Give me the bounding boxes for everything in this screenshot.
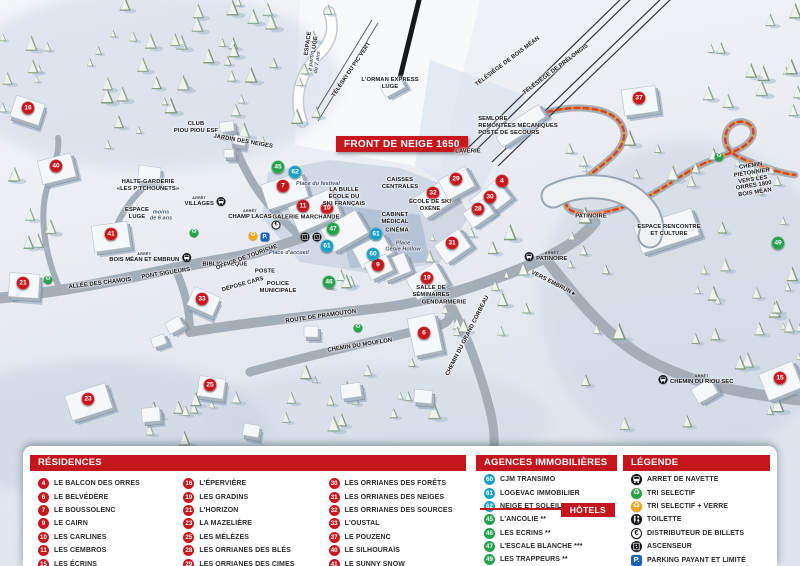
- legend-item: €DISTRIBUTEUR DE BILLETS: [623, 527, 770, 540]
- marker-badge: 41: [329, 559, 340, 566]
- map-icon-wrap: ♻: [715, 153, 724, 162]
- legend-item: 16L'ÉPERVIÈRE: [175, 477, 320, 490]
- legend-item-label: LES CARLINES: [54, 534, 107, 541]
- marker-badge: 45: [484, 514, 495, 525]
- legend-item-label: LE BELVÉDÈRE: [54, 494, 108, 501]
- legend-item: 46LES ECRINS **: [476, 526, 617, 539]
- map-marker-30[interactable]: 30: [484, 191, 497, 204]
- bus-stop: ARRÊTBOIS MÉAN ET EMBRUN: [109, 253, 191, 263]
- legend-item-label: DISTRIBUTEUR DE BILLETS: [647, 530, 744, 537]
- legend-item-label: LOGEVAC IMMOBILIER: [500, 490, 580, 497]
- legend-item: 23LA MAZELIÈRE: [175, 517, 320, 530]
- euro-icon: €: [631, 528, 642, 539]
- legend-item: 4LE BALCON DES ORRES: [30, 477, 175, 490]
- map-icon-wrap: €: [272, 221, 281, 230]
- map-label: CHEMIN PIÉTONNIER VERS LES ORRES 1800 BO…: [727, 159, 779, 200]
- marker-badge: 28: [183, 545, 194, 556]
- map-icon-wrap: P.: [261, 233, 270, 242]
- legend-item-label: TRI SELECTIF: [647, 490, 695, 497]
- map-marker-29[interactable]: 29: [450, 173, 463, 186]
- marker-badge: 6: [38, 492, 49, 503]
- marker-badge: 32: [329, 505, 340, 516]
- recycle-green-icon: ♻: [190, 229, 199, 238]
- map-label: ESPACE RENCONTRE ET CULTURE: [637, 224, 700, 238]
- bus-icon: [525, 252, 534, 261]
- map-marker-7[interactable]: 7: [277, 180, 290, 193]
- legend-item-label: L'ESCALE BLANCHE ***: [500, 543, 583, 550]
- legend-item-label: LA MAZELIÈRE: [199, 520, 252, 527]
- legend-item-label: LE BOUSSOLENC: [54, 507, 116, 514]
- legend-item: 25LES MÉLÈZES: [175, 531, 320, 544]
- map-marker-23[interactable]: 23: [82, 393, 95, 406]
- marker-badge: 30: [329, 478, 340, 489]
- legend-item-label: PARKING PAYANT ET LIMITÉ: [647, 557, 746, 564]
- map-icon-wrap: ♻: [44, 276, 53, 285]
- legend-item: TOILETTE: [623, 513, 770, 526]
- legend-item-label: TRI SELECTIF + VERRE: [647, 503, 728, 510]
- marker-badge: 37: [329, 532, 340, 543]
- recycle-green-icon: ♻: [354, 324, 363, 333]
- map-label: GALERIE MARCHANDE: [272, 215, 339, 222]
- map-marker-4[interactable]: 4: [496, 175, 509, 188]
- legend-item-label: L'HORIZON: [199, 507, 238, 514]
- legend-item-label: L'ÉPERVIÈRE: [199, 480, 246, 487]
- legend-item: ♻TRI SELECTIF + VERRE: [623, 500, 770, 513]
- map-label: LAVERIE: [455, 149, 480, 156]
- map-label: CINÉMA: [385, 228, 408, 235]
- recycle-orange-icon: ♻: [631, 501, 642, 512]
- marker-badge: 10: [38, 532, 49, 543]
- legend-item: 61LOGEVAC IMMOBILIER: [476, 486, 617, 499]
- legend-item-label: L'OUSTAL: [345, 520, 380, 527]
- legend-item: 9LE CAIRN: [30, 517, 175, 530]
- map-label: L'ORMAN EXPRESS LUGE: [361, 77, 418, 91]
- marker-badge: 29: [183, 559, 194, 566]
- marker-badge: 15: [38, 559, 49, 566]
- section-legende: LÉGENDE ARRET DE NAVETTE♻TRI SELECTIF♻TR…: [623, 446, 770, 566]
- map-label: PATINOIRE: [575, 214, 607, 221]
- legend-item-label: LES GRADINS: [199, 494, 248, 501]
- map-marker-28[interactable]: 28: [472, 203, 485, 216]
- bus-icon: [631, 474, 642, 485]
- legend-item: 28LES ORRIANES DES BLÉS: [175, 544, 320, 557]
- legend-item-label: LE BALCON DES ORRES: [54, 480, 140, 487]
- map-icon-wrap: [301, 233, 310, 242]
- map-marker-60[interactable]: 60: [367, 248, 380, 261]
- map-label: POLICE MUNICIPALE: [260, 281, 297, 295]
- elevator-icon: [313, 233, 322, 242]
- map-marker-25[interactable]: 25: [204, 379, 217, 392]
- elevator-icon: [301, 233, 310, 242]
- legend-item-label: TOILETTE: [647, 516, 682, 523]
- legend-item: 10LES CARLINES: [30, 531, 175, 544]
- elevator-icon: [631, 541, 642, 552]
- bus-stop: ARRÊTCHAMP LACAS: [228, 210, 271, 220]
- legende-header: LÉGENDE: [623, 455, 770, 471]
- legend-item: 47L'ESCALE BLANCHE ***: [476, 540, 617, 553]
- marker-badge: 11: [38, 545, 49, 556]
- map-marker-37[interactable]: 37: [633, 92, 646, 105]
- legend-item: 49LES TRAPPEURS **: [476, 553, 617, 566]
- legend-item: 29LES ORRIANES DES CIMES: [175, 557, 320, 566]
- map-marker-62[interactable]: 62: [289, 166, 302, 179]
- map-marker-46[interactable]: 46: [323, 276, 336, 289]
- front-de-neige-banner: FRONT DE NEIGE 1650: [336, 136, 468, 152]
- bus-stop: ARRÊTPATINOIRE: [525, 252, 568, 262]
- legend-item: 41LE SUNNY SNOW: [321, 557, 466, 566]
- map-icon-wrap: ♻: [354, 324, 363, 333]
- legend-item-label: LES ECRINS **: [500, 530, 551, 537]
- map-marker-16[interactable]: 16: [22, 102, 35, 115]
- map-label: HALTE-GARDERIE «LES P'TCHOUNETS»: [117, 179, 179, 193]
- legend-item: 40LE SILHOURAÏS: [321, 544, 466, 557]
- legend-item: 31LES ORRIANES DES NEIGES: [321, 490, 466, 503]
- legend-item: 15LES ÉCRINS: [30, 557, 175, 566]
- parking-icon: P.: [631, 555, 642, 566]
- marker-badge: 7: [38, 505, 49, 516]
- marker-badge: 47: [484, 541, 495, 552]
- legend-item-label: LES MÉLÈZES: [199, 534, 249, 541]
- marker-badge: 16: [183, 478, 194, 489]
- legend-item-label: LES TRAPPEURS **: [500, 556, 568, 563]
- agences-header: AGENCES IMMOBILIÈRES: [476, 455, 617, 471]
- bus-icon: [216, 197, 225, 206]
- map-marker-41[interactable]: 41: [105, 228, 118, 241]
- legend-item: 11LES CEMBROS: [30, 544, 175, 557]
- section-residences: RÉSIDENCES 4LE BALCON DES ORRES6LE BELVÉ…: [30, 446, 466, 566]
- bus-stop-label: BOIS MÉAN ET EMBRUN: [109, 257, 179, 263]
- resort-map-page: FRONT DE NEIGE 1650 16404121332325711109…: [0, 0, 800, 566]
- legend-item: 19LES GRADINS: [175, 490, 320, 503]
- map-marker-47[interactable]: 47: [327, 223, 340, 236]
- legend-item-label: LES CEMBROS: [54, 547, 106, 554]
- map-label: POSTE: [255, 269, 275, 276]
- map-label: moins de 6 ans: [150, 210, 172, 223]
- legend-item-label: CJM TRANSIMO: [500, 476, 555, 483]
- bus-icon: [182, 253, 191, 262]
- legend-item: 33L'OUSTAL: [321, 517, 466, 530]
- legend-panel: RÉSIDENCES 4LE BALCON DES ORRES6LE BELVÉ…: [23, 446, 777, 566]
- marker-badge: 62: [484, 501, 495, 512]
- map-label: Place Génie Hollow: [385, 241, 420, 254]
- map-icon-wrap: ♻: [249, 232, 258, 241]
- map-label: SALLE DE SÉMINAIRES: [412, 285, 449, 299]
- recycle-green-icon: ♻: [44, 276, 53, 285]
- map-label: LA BULLE ÉCOLE DU SKI FRANÇAIS: [323, 187, 365, 207]
- bus-stop-label: CHEMIN DU RIOU SEC: [670, 379, 734, 385]
- euro-icon: €: [272, 221, 281, 230]
- map-label: ÉCOLE DE SKI OXÈNE: [409, 199, 451, 213]
- legend-item: ♻TRI SELECTIF: [623, 486, 770, 499]
- legend-item-label: LE POUZENC: [345, 534, 391, 541]
- map-icon-wrap: ♻: [190, 229, 199, 238]
- map-marker-19[interactable]: 19: [421, 272, 434, 285]
- legend-item: 6LE BELVÉDÈRE: [30, 490, 175, 503]
- legend-item: 7LE BOUSSOLENC: [30, 504, 175, 517]
- legend-item-label: LES ORRIANES DES SOURCES: [345, 507, 453, 514]
- recycle-green-icon: ♻: [715, 153, 724, 162]
- bus-icon: [659, 375, 668, 384]
- recycle-green-icon: ♻: [631, 488, 642, 499]
- legend-item-label: LES ÉCRINS: [54, 561, 97, 566]
- parking-icon: P.: [261, 233, 270, 242]
- map-marker-6[interactable]: 6: [418, 327, 431, 340]
- legend-item-label: LES ORRIANES DES CIMES: [199, 561, 294, 566]
- map-label: Place d'accueil: [269, 250, 309, 256]
- marker-badge: 21: [183, 505, 194, 516]
- legend-item-label: LES ORRIANES DES BLÉS: [199, 547, 291, 554]
- map-marker-11[interactable]: 11: [297, 200, 310, 213]
- marker-badge: 4: [38, 478, 49, 489]
- legend-item-label: L'ANCOLIE **: [500, 516, 546, 523]
- map-marker-40[interactable]: 40: [50, 160, 63, 173]
- map-marker-49[interactable]: 49: [772, 237, 785, 250]
- map-marker-31[interactable]: 31: [446, 237, 459, 250]
- legend-item-label: LE SUNNY SNOW: [345, 561, 405, 566]
- bus-stop-label: VILLAGES: [185, 201, 214, 207]
- marker-badge: 49: [484, 554, 495, 565]
- map-label: CLUB PIOU PIOU ESF: [174, 121, 218, 135]
- legend-item-label: ARRET DE NAVETTE: [647, 476, 718, 483]
- map-label: CAISSES CENTRALES: [382, 177, 418, 191]
- map-label: CABINET MÉDICAL: [381, 212, 408, 226]
- marker-badge: 25: [183, 532, 194, 543]
- marker-badge: 19: [183, 492, 194, 503]
- marker-badge: 40: [329, 545, 340, 556]
- map-marker-21[interactable]: 21: [17, 277, 30, 290]
- marker-badge: 61: [484, 488, 495, 499]
- legend-item-label: ASCENSEUR: [647, 543, 692, 550]
- legend-item: 32LES ORRIANES DES SOURCES: [321, 504, 466, 517]
- legend-item: 37LE POUZENC: [321, 531, 466, 544]
- marker-badge: 23: [183, 518, 194, 529]
- recycle-orange-icon: ♻: [249, 232, 258, 241]
- map-marker-61[interactable]: 61: [370, 228, 383, 241]
- legend-item-label: LE CAIRN: [54, 520, 88, 527]
- legend-item: 21L'HORIZON: [175, 504, 320, 517]
- marker-badge: 46: [484, 528, 495, 539]
- map-marker-15[interactable]: 15: [774, 372, 787, 385]
- legend-item: 30LES ORRIANES DES FORÊTS: [321, 477, 466, 490]
- legend-item-label: LES ORRIANES DES NEIGES: [345, 494, 445, 501]
- bus-stop: ARRÊTCHEMIN DU RIOU SEC: [659, 375, 734, 385]
- legend-item-label: LE SILHOURAÏS: [345, 547, 400, 554]
- marker-badge: 33: [329, 518, 340, 529]
- marker-badge: 31: [329, 492, 340, 503]
- residences-header: RÉSIDENCES: [30, 455, 466, 471]
- map-marker-33[interactable]: 33: [196, 293, 209, 306]
- legend-item: 60CJM TRANSIMO: [476, 473, 617, 486]
- bus-stop: ARRÊTVILLAGES: [185, 197, 226, 207]
- map-label: SEMLORE REMONTÉES MÉCANIQUES POSTE DE SE…: [478, 116, 558, 136]
- map-icon-wrap: [313, 233, 322, 242]
- legend-item: P.PARKING PAYANT ET LIMITÉ: [623, 553, 770, 566]
- bus-stop-label: PATINOIRE: [536, 256, 567, 262]
- marker-badge: 60: [484, 474, 495, 485]
- map-label: ESPACE LUGE: [125, 207, 149, 221]
- bus-stop-label: CHAMP LACAS: [228, 214, 271, 220]
- legend-item: ASCENSEUR: [623, 540, 770, 553]
- legend-item-label: LES ORRIANES DES FORÊTS: [345, 480, 446, 487]
- section-agences: AGENCES IMMOBILIÈRES 60CJM TRANSIMO61LOG…: [476, 446, 617, 566]
- map-marker-45[interactable]: 45: [272, 161, 285, 174]
- legend-item: 45L'ANCOLIE **: [476, 513, 617, 526]
- map-marker-61[interactable]: 61: [321, 240, 334, 253]
- marker-badge: 9: [38, 518, 49, 529]
- map-marker-32[interactable]: 32: [427, 187, 440, 200]
- toilet-icon: [631, 514, 642, 525]
- map-label: GENDARMERIE: [422, 300, 467, 307]
- legend-item: ARRET DE NAVETTE: [623, 473, 770, 486]
